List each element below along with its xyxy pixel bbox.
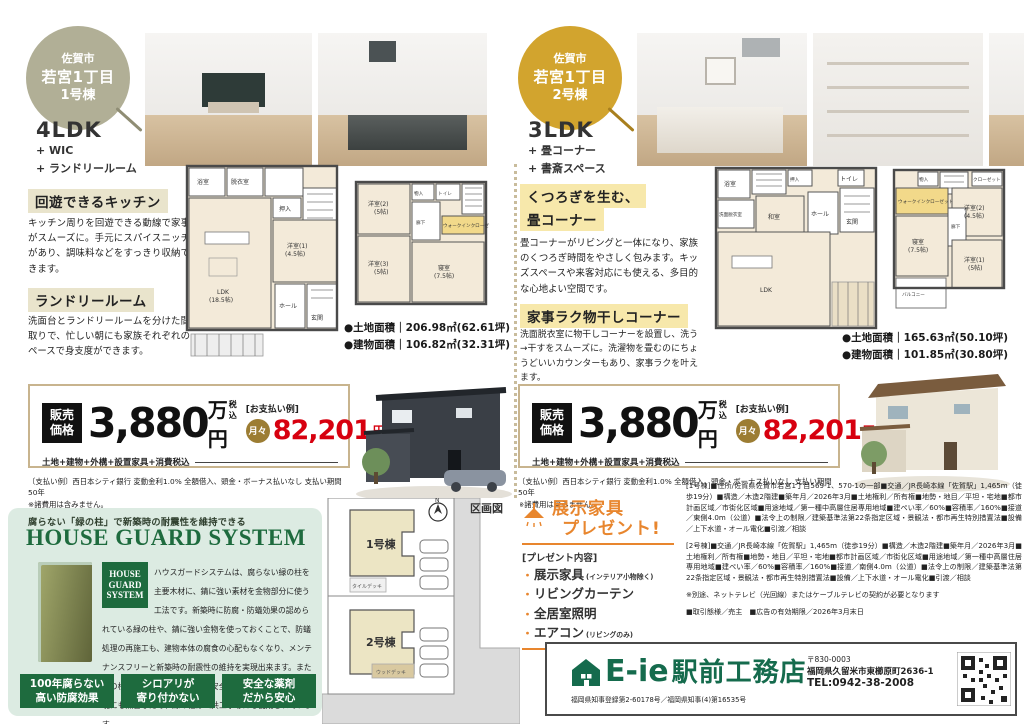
unit2-badge: 佐賀市 若宮1丁目 2号棟 bbox=[518, 26, 622, 130]
photo-unit2-kitchen bbox=[637, 33, 807, 166]
flyer-page: 佐賀市 若宮1丁目 1号棟 4LDK + WIC + ランドリールーム 回遊でき… bbox=[0, 0, 1024, 724]
unit2-plan-type: 3LDK bbox=[528, 118, 606, 142]
photo-shelf bbox=[827, 110, 970, 113]
section-drying-title: 家事ラク物干しコーナー bbox=[520, 304, 688, 328]
svg-text:洗面脱衣室: 洗面脱衣室 bbox=[719, 211, 742, 218]
unit1-badge-city: 佐賀市 bbox=[62, 52, 95, 67]
price-includes-text: 土地+建物+外構+設置家具+消費税込 bbox=[42, 456, 190, 468]
legal-note: ※別途、ネットテレビ（光回線）またはケーブルテレビの契約が必要となります bbox=[686, 590, 1022, 601]
price-label-badge: 販売 価格 bbox=[42, 403, 82, 443]
unit1-plan-type: 4LDK bbox=[36, 118, 137, 142]
photo-shelf bbox=[827, 134, 970, 137]
floorplan-unit2-1f: 浴室 洗面脱衣室 押入 和室 LDK ホール 玄関 トイレ bbox=[712, 164, 882, 334]
section-laundry-body: 洗面台とランドリールームを分けた間取りで、忙しい朝にも家族それぞれのペースで身支… bbox=[28, 314, 190, 360]
section-tatami-title-line2: 畳コーナー bbox=[520, 207, 604, 231]
plot-map: N 区画図 1号棟 タイルデッキ 2号棟 ウッドデッキ bbox=[322, 498, 520, 724]
rule-line bbox=[522, 543, 674, 545]
svg-text:脱衣室: 脱衣室 bbox=[231, 178, 249, 186]
house-guard-logo-badge: HOUSE GUARD SYSTEM bbox=[102, 562, 148, 608]
price-unit: 万円 bbox=[208, 394, 228, 452]
photo-range-hood bbox=[742, 38, 779, 57]
unit1-land-area: ●土地面積｜206.98㎡(62.61坪) bbox=[344, 320, 510, 337]
gift-contents-label: [プレゼント内容] bbox=[522, 550, 597, 564]
svg-text:寝室: 寝室 bbox=[438, 264, 450, 272]
unit2-feature-2: + 書斎スペース bbox=[528, 160, 606, 178]
render-unit1-exterior bbox=[352, 366, 517, 506]
unit2-feature-1: + 畳コーナー bbox=[528, 142, 606, 160]
svg-text:寝室: 寝室 bbox=[912, 238, 924, 246]
unit1-areas: ●土地面積｜206.98㎡(62.61坪) ●建物面積｜106.82㎡(32.3… bbox=[344, 320, 510, 354]
section-laundry-title: ランドリールーム bbox=[28, 288, 154, 312]
svg-text:バルコニー: バルコニー bbox=[902, 292, 925, 298]
section-tatami-title-line1: くつろぎを生む、 bbox=[520, 184, 646, 208]
floorplan-unit1-1f: 浴室 脱衣室 押入 LDK (18.5帖) 洋室(1) (4.5帖) ホール 玄… bbox=[183, 162, 343, 374]
photo-shelf bbox=[827, 86, 970, 89]
pendant-lamp-icon bbox=[522, 503, 546, 529]
price-tax-note: 税込 bbox=[719, 399, 727, 421]
monthly-prefix-badge: 月々 bbox=[736, 419, 760, 443]
svg-text:(7.5帖): (7.5帖) bbox=[434, 272, 454, 280]
gift-items: ・ 展示家具 (インテリア小物除く) ・ リビングカーテン ・ 全居室照明 ・ … bbox=[522, 565, 653, 643]
qr-code bbox=[957, 652, 1011, 706]
gift-item-furniture: ・ 展示家具 (インテリア小物除く) bbox=[522, 565, 653, 584]
unit2-monthly-amount: 82,201 bbox=[763, 417, 861, 444]
floorplan-unit1-2f: 物入 トイレ 洋室(2) (5帖) 廊下 ウォークインクローゼット 洋室(3) … bbox=[352, 178, 490, 310]
monthly-prefix-badge: 月々 bbox=[246, 419, 270, 443]
unit1-badge-street: 若宮1丁目 bbox=[42, 67, 115, 87]
svg-text:2号棟: 2号棟 bbox=[366, 635, 397, 649]
svg-text:クローゼット: クローゼット bbox=[973, 176, 1001, 183]
photo-floor bbox=[989, 115, 1024, 166]
floorplan-unit2-2f: 物入 クローゼット 洋室(2) (4.5帖) 廊下 ウォークインクローゼット 寝… bbox=[890, 166, 1010, 314]
svg-text:洋室(1): 洋室(1) bbox=[964, 256, 985, 264]
gift-item-aircon: ・ エアコン (リビングのみ) bbox=[522, 623, 653, 642]
svg-text:トイレ: トイレ bbox=[438, 192, 452, 197]
svg-text:廊下: 廊下 bbox=[416, 219, 426, 226]
photo-unit1-kitchen bbox=[318, 33, 487, 166]
benefit-badge-antirot: 100年腐らない 高い防腐効果 bbox=[20, 674, 114, 708]
svg-text:ホール: ホール bbox=[279, 303, 297, 310]
photo-kitchen-counter bbox=[657, 107, 783, 152]
svg-text:洋室(3): 洋室(3) bbox=[368, 260, 389, 268]
svg-text:1号棟: 1号棟 bbox=[366, 537, 397, 551]
unit2-badge-city: 佐賀市 bbox=[554, 52, 587, 67]
price-label-badge: 販売 価格 bbox=[532, 403, 572, 443]
svg-text:区画図: 区画図 bbox=[470, 501, 503, 515]
company-contact: 〒830-0003 福岡県久留米市東櫛原町2636-1 TEL:0942-38-… bbox=[807, 654, 934, 689]
gift-title: 展示家具 プレゼント! bbox=[552, 500, 661, 539]
svg-text:浴室: 浴室 bbox=[197, 178, 209, 186]
company-box: E-ie 駅前工務店 福岡県知事登録第2-60178号／福岡県知事(4)第165… bbox=[545, 642, 1017, 716]
unit2-badge-street: 若宮1丁目 bbox=[534, 67, 607, 87]
company-zip: 〒830-0003 bbox=[807, 654, 934, 665]
svg-text:押入: 押入 bbox=[279, 205, 291, 213]
photo-shelf bbox=[827, 62, 970, 65]
svg-text:タイルデッキ: タイルデッキ bbox=[352, 583, 382, 590]
svg-text:ウッドデッキ: ウッドデッキ bbox=[376, 669, 406, 676]
company-name: E-ie 駅前工務店 bbox=[605, 652, 807, 689]
price-includes-text: 土地+建物+外構+設置家具+消費税込 bbox=[532, 456, 680, 468]
company-address: 福岡県久留米市東櫛原町2636-1 bbox=[807, 665, 934, 677]
photo-range-hood bbox=[369, 41, 396, 62]
section-kitchen-body: キッチン周りを回遊できる動線で家事がスムーズに。手元にスパイスニッチがあり、調味… bbox=[28, 216, 190, 277]
gift-item-curtain: ・ リビングカーテン bbox=[522, 584, 653, 603]
unit2-price-box: 販売 価格 3,880 万円 税込 [お支払い例] 月々 82,201 円 土地… bbox=[518, 384, 840, 468]
rule-line bbox=[195, 462, 339, 463]
svg-text:ホール: ホール bbox=[811, 211, 829, 218]
photo-unit2-pantry bbox=[813, 33, 983, 166]
photo-unit2-extra bbox=[989, 33, 1024, 166]
house-guard-title: HOUSE GUARD SYSTEM bbox=[26, 525, 306, 551]
unit1-layout-info: 4LDK + WIC + ランドリールーム bbox=[36, 118, 137, 177]
svg-text:(7.5帖): (7.5帖) bbox=[908, 246, 928, 254]
green-pillar-image bbox=[38, 562, 92, 662]
benefit-badge-termite: シロアリが 寄り付かない bbox=[121, 674, 215, 708]
benefit-badge-safe: 安全な薬剤 だから安心 bbox=[222, 674, 316, 708]
svg-text:廊下: 廊下 bbox=[951, 223, 961, 230]
house-guard-section: 腐らない「緑の柱」で新築時の耐震性を維持できる HOUSE GUARD SYST… bbox=[8, 508, 322, 716]
svg-text:ウォークインクローゼット: ウォークインクローゼット bbox=[443, 222, 490, 229]
svg-text:浴室: 浴室 bbox=[724, 180, 736, 188]
photo-floor bbox=[145, 115, 312, 166]
payment-example-label: [お支払い例] bbox=[246, 402, 299, 415]
photo-window bbox=[705, 57, 736, 85]
legal-unit2: [2号棟]■交通／JR長崎本線「佐賀駅」1,465m（徒歩19分）■構造／木造2… bbox=[686, 541, 1022, 584]
render-unit2-exterior bbox=[848, 356, 1016, 496]
photo-wall bbox=[989, 33, 1024, 115]
section-kitchen-title: 回遊できるキッチン bbox=[28, 189, 168, 213]
legal-details: [1号棟]■住所/佐賀県佐賀市若宮1丁目569-1、570-1の一部■交通／JR… bbox=[686, 481, 1022, 624]
rule-line bbox=[685, 462, 829, 463]
unit1-feature-2: + ランドリールーム bbox=[36, 160, 137, 178]
svg-text:LDK: LDK bbox=[760, 287, 773, 294]
unit1-price-amount: 3,880 bbox=[88, 403, 208, 444]
company-license: 福岡県知事登録第2-60178号／福岡県知事(4)第16535号 bbox=[571, 694, 746, 704]
house-guard-benefit-badges: 100年腐らない 高い防腐効果 シロアリが 寄り付かない 安全な薬剤 だから安心 bbox=[20, 674, 316, 708]
unit1-badge-number: 1号棟 bbox=[60, 87, 95, 105]
unit2-badge-number: 2号棟 bbox=[552, 87, 587, 105]
svg-text:洋室(2): 洋室(2) bbox=[368, 200, 389, 208]
unit2-layout-info: 3LDK + 畳コーナー + 書斎スペース bbox=[528, 118, 606, 177]
svg-text:玄関: 玄関 bbox=[846, 218, 858, 226]
unit1-building-area: ●建物面積｜106.82㎡(32.31坪) bbox=[344, 337, 510, 354]
svg-text:(4.5帖): (4.5帖) bbox=[964, 212, 984, 220]
legal-unit1: [1号棟]■住所/佐賀県佐賀市若宮1丁目569-1、570-1の一部■交通／JR… bbox=[686, 481, 1022, 535]
legal-deal-type: ■取引態様／売主 ■広告の有効期限／2026年3月末日 bbox=[686, 607, 1022, 618]
svg-text:(4.5帖): (4.5帖) bbox=[285, 250, 305, 258]
unit2-land-area: ●土地面積｜165.63㎡(50.10坪) bbox=[842, 330, 1008, 347]
svg-text:物入: 物入 bbox=[414, 190, 424, 197]
svg-text:N: N bbox=[435, 498, 440, 504]
svg-text:(5帖): (5帖) bbox=[968, 264, 983, 272]
unit1-payment-note: 〔支払い例〕西日本シティ銀行 変動金利1.0% 全額借入、頭金・ボーナス払いなし… bbox=[28, 476, 350, 510]
svg-text:LDK: LDK bbox=[217, 289, 230, 296]
svg-text:物入: 物入 bbox=[919, 176, 929, 183]
unit2-price-amount: 3,880 bbox=[578, 403, 698, 444]
photo-unit1-dining bbox=[145, 33, 312, 166]
svg-text:洋室(1): 洋室(1) bbox=[287, 242, 308, 250]
svg-text:(5帖): (5帖) bbox=[374, 208, 389, 216]
unit2-badge-pointer bbox=[607, 107, 634, 132]
section-tatami-body: 畳コーナーがリビングと一体になり、家族のくつろぎ時間をやさしく包みます。キッズス… bbox=[520, 236, 698, 297]
section-drying-body: 洗面脱衣室に物干しコーナーを設置し、洗う→干すをスムーズに。洗濯物を畳むのにちょ… bbox=[520, 328, 698, 386]
unit1-badge: 佐賀市 若宮1丁目 1号棟 bbox=[26, 26, 130, 130]
photo-wall bbox=[318, 33, 487, 115]
company-tel: TEL:0942-38-2008 bbox=[807, 677, 934, 689]
price-unit: 万円 bbox=[698, 394, 718, 452]
column-separator bbox=[514, 164, 517, 522]
svg-text:押入: 押入 bbox=[790, 176, 800, 183]
svg-text:(5帖): (5帖) bbox=[374, 268, 389, 276]
svg-text:玄関: 玄関 bbox=[311, 314, 323, 322]
unit1-price-box: 販売 価格 3,880 万円 税込 [お支払い例] 月々 82,201 円 土地… bbox=[28, 384, 350, 468]
company-house-icon bbox=[571, 657, 601, 687]
svg-text:和室: 和室 bbox=[768, 213, 780, 221]
unit1-feature-1: + WIC bbox=[36, 142, 137, 160]
payment-example-label: [お支払い例] bbox=[736, 402, 789, 415]
photo-kitchen-counter bbox=[348, 115, 466, 150]
svg-text:洋室(2): 洋室(2) bbox=[964, 204, 985, 212]
price-tax-note: 税込 bbox=[229, 399, 237, 421]
gift-item-lighting: ・ 全居室照明 bbox=[522, 604, 653, 623]
svg-text:(18.5帖): (18.5帖) bbox=[209, 296, 233, 304]
photo-wall bbox=[813, 33, 983, 166]
svg-text:トイレ: トイレ bbox=[840, 176, 858, 183]
photo-dining-table bbox=[208, 102, 258, 113]
svg-text:ウォークインクローゼット: ウォークインクローゼット bbox=[898, 198, 953, 205]
